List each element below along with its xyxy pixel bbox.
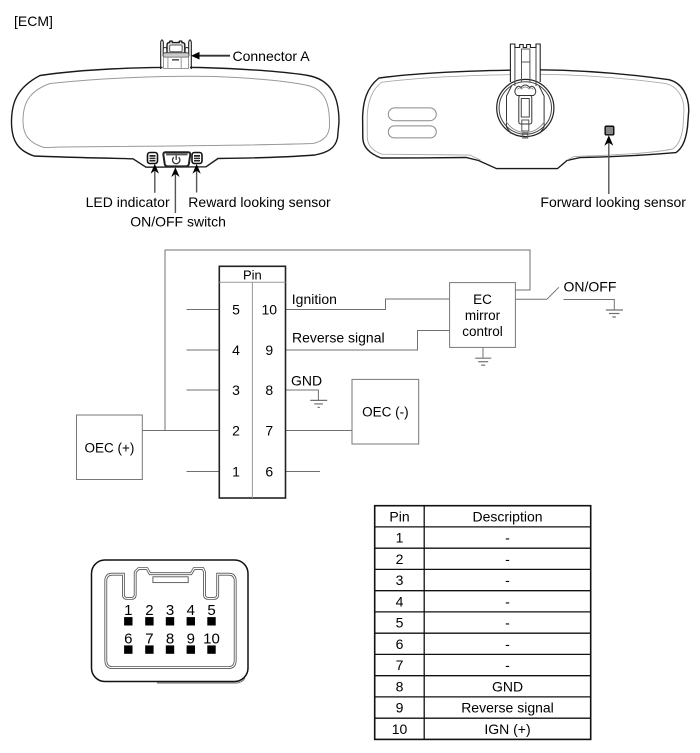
svg-text:OEC (-): OEC (-) — [362, 405, 409, 420]
svg-text:5: 5 — [232, 302, 240, 318]
svg-text:4: 4 — [187, 602, 195, 619]
svg-text:6: 6 — [124, 631, 132, 648]
svg-text:ON/OFF: ON/OFF — [564, 279, 617, 295]
svg-text:Reward looking sensor: Reward looking sensor — [188, 194, 331, 210]
svg-text:Ignition: Ignition — [292, 291, 337, 307]
svg-text:LED indicator: LED indicator — [86, 194, 170, 210]
svg-text:Pin: Pin — [243, 268, 262, 283]
svg-text:7: 7 — [396, 657, 404, 673]
svg-text:8: 8 — [396, 678, 404, 694]
svg-text:10: 10 — [262, 302, 278, 318]
svg-text:Forward looking sensor: Forward looking sensor — [540, 194, 686, 210]
svg-text:4: 4 — [396, 593, 404, 609]
svg-text:control: control — [462, 324, 503, 339]
svg-text:6: 6 — [265, 464, 273, 480]
svg-text:-: - — [505, 593, 510, 609]
svg-text:mirror: mirror — [465, 308, 501, 323]
svg-text:9: 9 — [396, 700, 404, 716]
svg-text:7: 7 — [265, 423, 273, 439]
svg-text:EC: EC — [473, 292, 492, 307]
svg-text:1: 1 — [124, 602, 132, 619]
svg-text:5: 5 — [207, 602, 215, 619]
svg-text:8: 8 — [265, 382, 273, 398]
svg-text:2: 2 — [145, 602, 153, 619]
svg-text:1: 1 — [396, 530, 404, 546]
svg-text:3: 3 — [232, 382, 240, 398]
svg-text:4: 4 — [232, 342, 240, 358]
svg-text:GND: GND — [291, 372, 322, 388]
svg-text:Connector A: Connector A — [233, 48, 311, 64]
svg-text:Reverse signal: Reverse signal — [292, 330, 385, 346]
svg-text:-: - — [505, 572, 510, 588]
svg-text:6: 6 — [396, 636, 404, 652]
svg-text:-: - — [505, 530, 510, 546]
svg-text:[ECM]: [ECM] — [14, 13, 53, 29]
svg-text:Description: Description — [472, 508, 542, 524]
svg-text:-: - — [505, 636, 510, 652]
svg-text:10: 10 — [203, 631, 220, 648]
svg-text:1: 1 — [232, 464, 240, 480]
svg-text:3: 3 — [396, 572, 404, 588]
svg-text:3: 3 — [166, 602, 174, 619]
svg-text:8: 8 — [166, 631, 174, 648]
svg-text:7: 7 — [145, 631, 153, 648]
svg-text:5: 5 — [396, 615, 404, 631]
svg-text:2: 2 — [396, 551, 404, 567]
svg-text:Reverse signal: Reverse signal — [461, 700, 554, 716]
svg-text:-: - — [505, 551, 510, 567]
svg-text:2: 2 — [232, 423, 240, 439]
svg-text:IGN (+): IGN (+) — [484, 721, 530, 737]
svg-text:-: - — [505, 657, 510, 673]
svg-text:9: 9 — [187, 631, 195, 648]
svg-text:10: 10 — [392, 721, 408, 737]
svg-text:Pin: Pin — [389, 508, 409, 524]
svg-text:OEC (+): OEC (+) — [84, 441, 134, 456]
svg-text:-: - — [505, 615, 510, 631]
svg-text:GND: GND — [492, 678, 523, 694]
svg-text:9: 9 — [265, 342, 273, 358]
svg-text:ON/OFF switch: ON/OFF switch — [130, 214, 226, 230]
